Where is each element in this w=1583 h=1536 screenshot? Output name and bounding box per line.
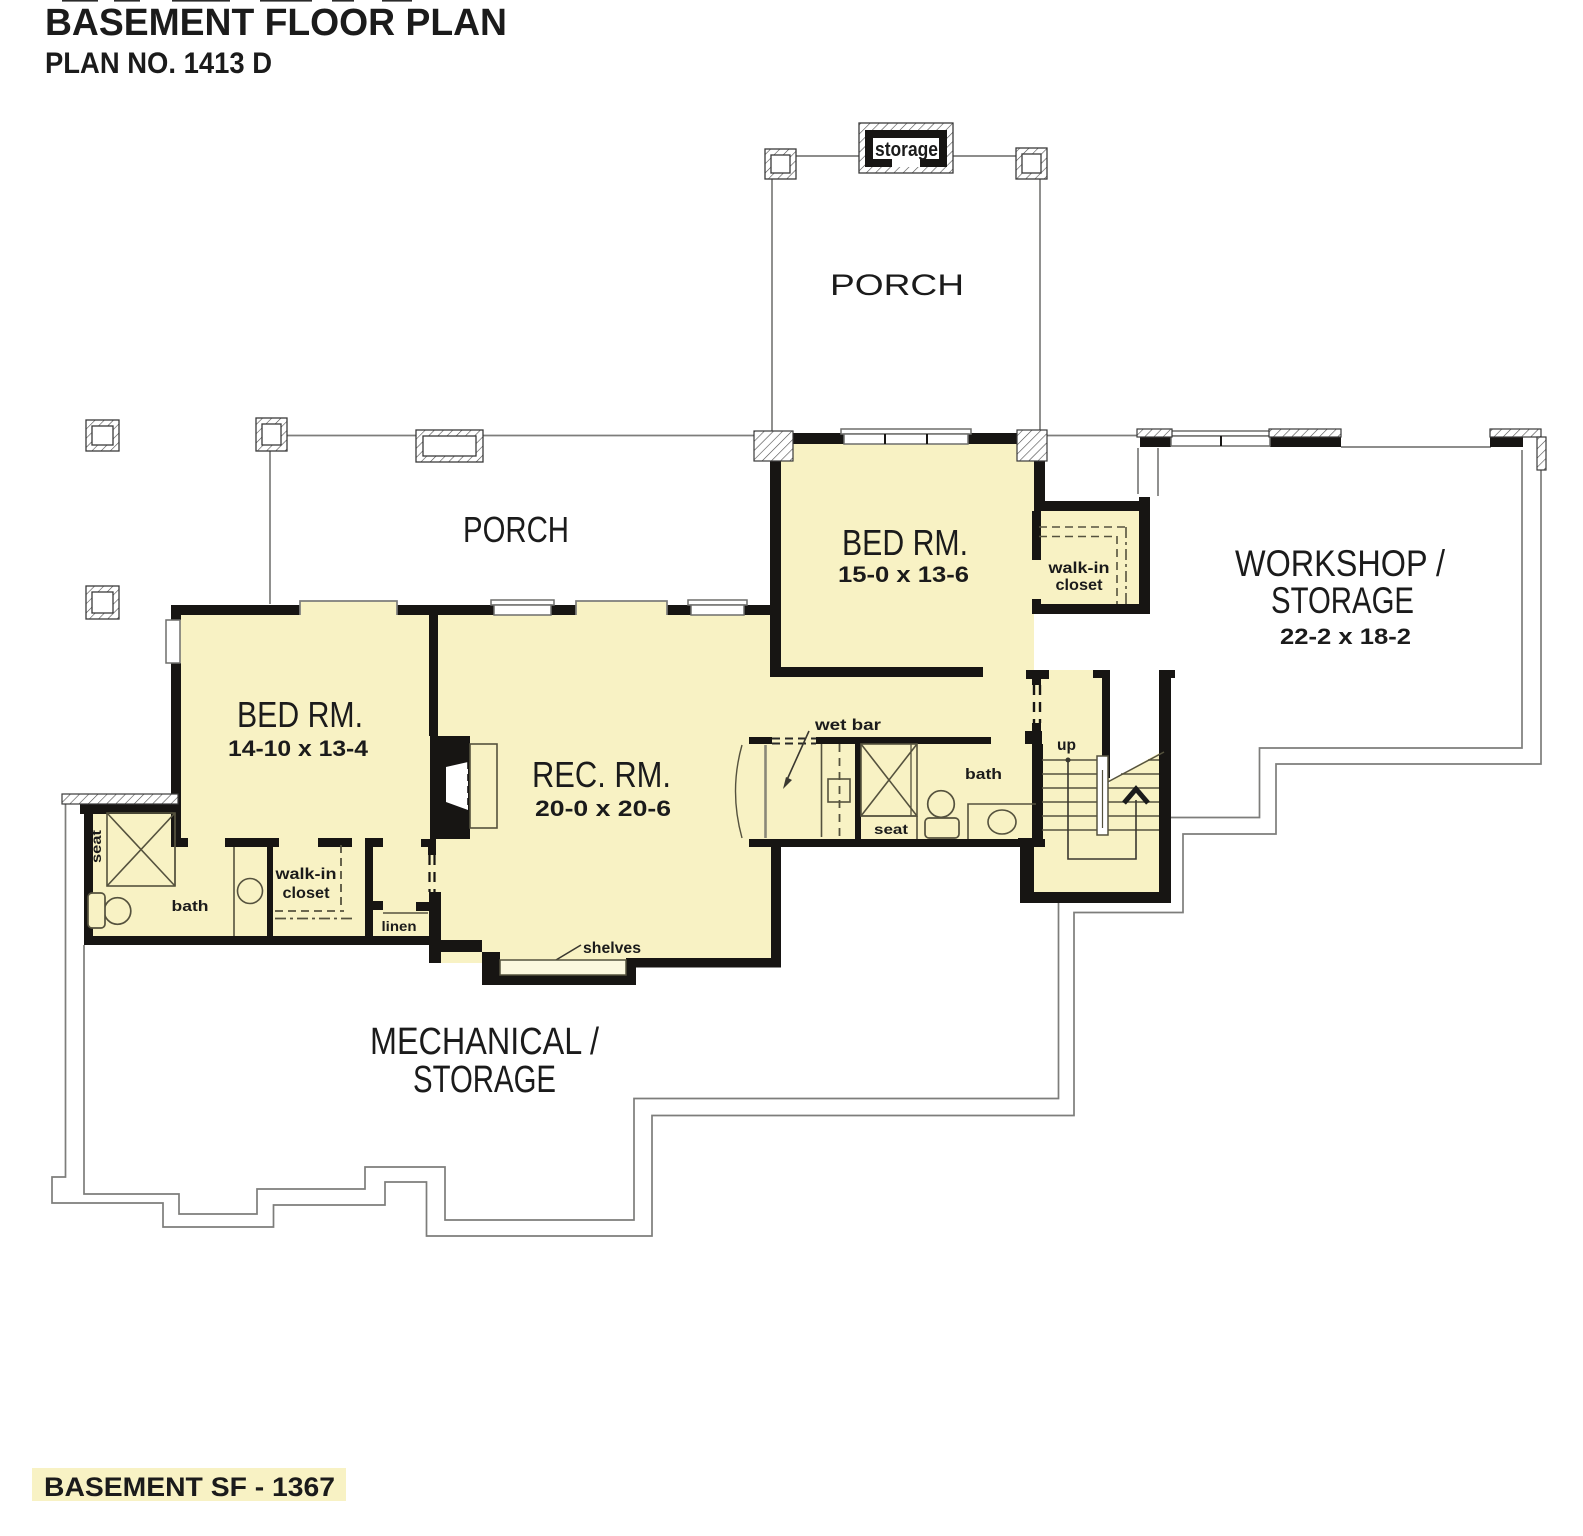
svg-text:seat: seat (88, 830, 104, 863)
svg-text:BASEMENT FLOOR PLAN: BASEMENT FLOOR PLAN (45, 2, 507, 44)
svg-text:22-2 x 18-2: 22-2 x 18-2 (1280, 624, 1411, 649)
svg-text:shelves: shelves (583, 940, 641, 957)
svg-text:BASEMENT SF - 1367: BASEMENT SF - 1367 (44, 1472, 335, 1502)
svg-text:storage: storage (875, 139, 938, 161)
svg-text:BED RM.: BED RM. (842, 522, 968, 563)
svg-text:linen: linen (382, 918, 417, 934)
svg-text:walk-in: walk-in (1047, 560, 1109, 577)
svg-text:STORAGE: STORAGE (413, 1059, 556, 1101)
svg-text:walk-in: walk-in (274, 866, 336, 883)
svg-text:STORAGE: STORAGE (1271, 580, 1414, 621)
svg-text:PLAN NO. 1413 D: PLAN NO. 1413 D (45, 47, 272, 80)
svg-text:15-0 x 13-6: 15-0 x 13-6 (838, 562, 969, 587)
svg-text:14-10 x 13-4: 14-10 x 13-4 (228, 736, 369, 761)
svg-text:up: up (1057, 737, 1076, 754)
svg-text:bath: bath (172, 898, 209, 915)
svg-text:PORCH: PORCH (830, 269, 964, 302)
svg-text:bath: bath (965, 766, 1002, 783)
svg-text:PORCH: PORCH (463, 509, 569, 550)
svg-text:20-0 x 20-6: 20-0 x 20-6 (535, 796, 671, 821)
svg-text:wet bar: wet bar (814, 717, 881, 734)
svg-text:BED RM.: BED RM. (237, 694, 363, 735)
svg-text:REC. RM.: REC. RM. (532, 754, 671, 795)
svg-text:WORKSHOP /: WORKSHOP / (1235, 543, 1446, 584)
svg-text:MECHANICAL /: MECHANICAL / (370, 1021, 599, 1063)
svg-text:seat: seat (874, 821, 908, 837)
svg-text:closet: closet (1056, 577, 1104, 594)
svg-text:closet: closet (283, 885, 331, 902)
